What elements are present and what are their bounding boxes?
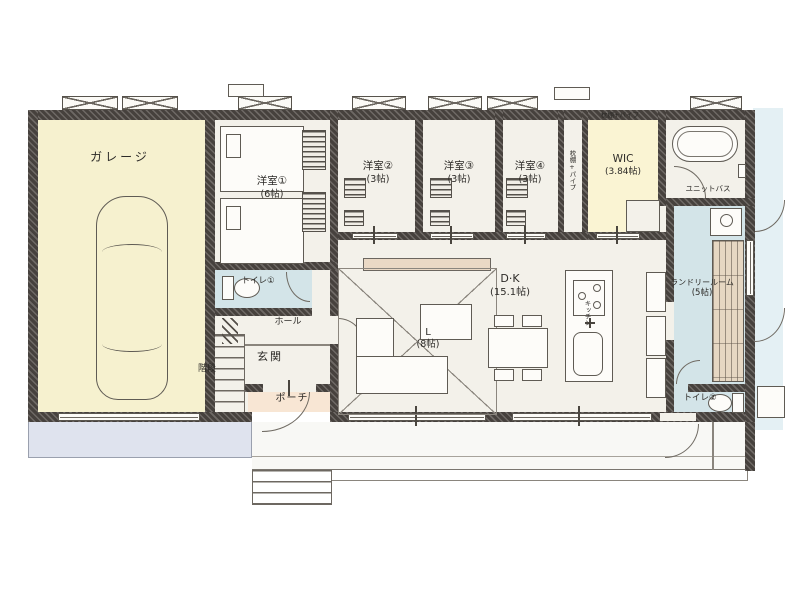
bedroom1-area: (6帖) (257, 189, 287, 201)
water-heater-unit (757, 386, 785, 418)
deck-door-opening (660, 413, 696, 421)
tick (616, 226, 618, 244)
label-toilet1: トイレ① (241, 276, 274, 287)
burner (593, 301, 601, 309)
label-shelf-note-top: 枕棚+パイプ (601, 111, 639, 119)
laundry-area: (5帖) (670, 288, 734, 299)
bedroom3-name: 洋室③ (444, 160, 474, 174)
dining-table (488, 328, 548, 368)
wall-bedroom3-4 (495, 110, 503, 240)
shelf-bedroom2 (344, 210, 364, 226)
wall-bath-bottom (666, 198, 755, 206)
bedroom4-area: (3帖) (515, 174, 545, 186)
wall-right-deck (745, 422, 755, 471)
wall-bedroom4-closet (558, 110, 564, 240)
wall-laundry-left-b (666, 340, 674, 412)
dk-area: (15.1帖) (490, 286, 530, 299)
bedroom3-sliding-door (430, 233, 474, 239)
bath-window (690, 96, 742, 110)
tick (578, 406, 580, 426)
garage-window-2 (122, 96, 178, 110)
bedroom3-window (428, 96, 482, 110)
living-name: L (417, 326, 440, 339)
staircase (215, 334, 245, 412)
bed-2-pillow (226, 206, 241, 230)
bedroom2-window (352, 96, 406, 110)
wall-bedroom1-right-a (330, 110, 338, 316)
bedroom3-area: (3帖) (444, 174, 474, 186)
closet-hanger-1 (302, 130, 326, 170)
bedroom2-name: 洋室② (363, 160, 393, 174)
wall-top (28, 110, 755, 120)
washing-machine-drum (720, 214, 733, 227)
deck-apron (332, 470, 748, 481)
ac-unit-2 (554, 87, 590, 100)
floor-plan: ガレージ 洋室① (6帖) 洋室② (3帖) 洋室③ (3帖) 洋室④ (3帖)… (0, 0, 800, 600)
label-garage: ガレージ (90, 150, 150, 166)
kitchen-sink (573, 332, 603, 376)
label-entrance: 玄関 (257, 350, 283, 364)
bath-fixture (738, 164, 746, 178)
burner (593, 284, 601, 292)
pantry-shelf (646, 358, 666, 398)
tick (450, 226, 452, 244)
wall-porch-a (245, 384, 263, 392)
closet-hanger-2 (302, 192, 326, 232)
car-windshield (102, 244, 162, 260)
bedroom1-name: 洋室① (257, 175, 287, 189)
bathtub-inner (677, 131, 733, 157)
laundry-window (746, 240, 754, 296)
tick (373, 226, 375, 244)
garage-window-1 (62, 96, 118, 110)
label-bedroom1: 洋室① (6帖) (257, 175, 287, 201)
toilet1-tank (222, 276, 234, 300)
tick (524, 226, 526, 244)
wall-bedroom1-right-b (330, 344, 338, 412)
label-toilet2: トイレ② (683, 393, 716, 404)
exterior-wash (753, 108, 783, 430)
living-area: (8帖) (417, 339, 440, 351)
sofa-bottom (356, 356, 448, 394)
wall-toilet1-bottom (215, 308, 312, 316)
label-unit-bath: ユニットバス (686, 184, 731, 194)
dining-window (512, 413, 652, 421)
bedroom1-window (238, 96, 292, 110)
label-shelf-note-side: 枕棚+パイプ (567, 150, 577, 191)
wic-area: (3.84帖) (605, 167, 641, 179)
dk-name: D·K (490, 272, 530, 286)
wall-wic-right (658, 110, 666, 206)
label-laundry: ランドリールーム (5帖) (670, 278, 734, 299)
car-rear-window (102, 336, 162, 352)
shelf-bedroom4 (506, 210, 526, 226)
label-porch: ポーチ (276, 392, 309, 405)
wall-toilet2-top (688, 384, 745, 392)
burner (578, 292, 586, 300)
pantry-shelf (646, 316, 666, 356)
label-hall: ホール (274, 317, 301, 329)
porch-steps (252, 470, 332, 505)
wic-storage-nook (626, 200, 660, 232)
bed-1-pillow (226, 134, 241, 158)
bedroom4-sliding-door (506, 233, 546, 239)
car (96, 196, 168, 400)
bedroom4-window (487, 96, 538, 110)
ac-unit-1 (228, 84, 264, 97)
label-living: L (8帖) (417, 326, 440, 351)
laundry-rack (712, 240, 744, 382)
dining-chair (522, 315, 542, 327)
deck-divider (712, 422, 714, 470)
label-bedroom2: 洋室② (3帖) (363, 160, 393, 186)
label-stairs: 階段 (198, 364, 216, 376)
bedroom2-sliding-door (352, 233, 398, 239)
label-dk: D·K (15.1帖) (490, 272, 530, 299)
dining-chair (522, 369, 542, 381)
pantry-shelf (646, 272, 666, 312)
label-wic: WIC (3.84帖) (605, 153, 641, 178)
hall-step-line (245, 344, 330, 346)
dining-chair (494, 369, 514, 381)
wic-sliding-door (596, 233, 640, 239)
wic-name: WIC (605, 153, 641, 167)
wall-left (28, 110, 38, 422)
label-bedroom4: 洋室④ (3帖) (515, 160, 545, 186)
laundry-name: ランドリールーム (670, 278, 734, 288)
garage-shutter-door (58, 413, 200, 421)
bedroom4-name: 洋室④ (515, 160, 545, 174)
shelf-bedroom3 (430, 210, 450, 226)
driveway (28, 422, 252, 458)
toilet2-tank (732, 393, 744, 413)
wall-closet-wic (582, 110, 588, 240)
wall-bedroom2-3 (415, 110, 423, 240)
label-bedroom3: 洋室③ (3帖) (444, 160, 474, 186)
label-kitchen: キッチン (582, 300, 592, 326)
dining-chair (494, 315, 514, 327)
bedroom2-area: (3帖) (363, 174, 393, 186)
coat-hooks (222, 318, 238, 344)
wall-porch-b (316, 384, 330, 392)
